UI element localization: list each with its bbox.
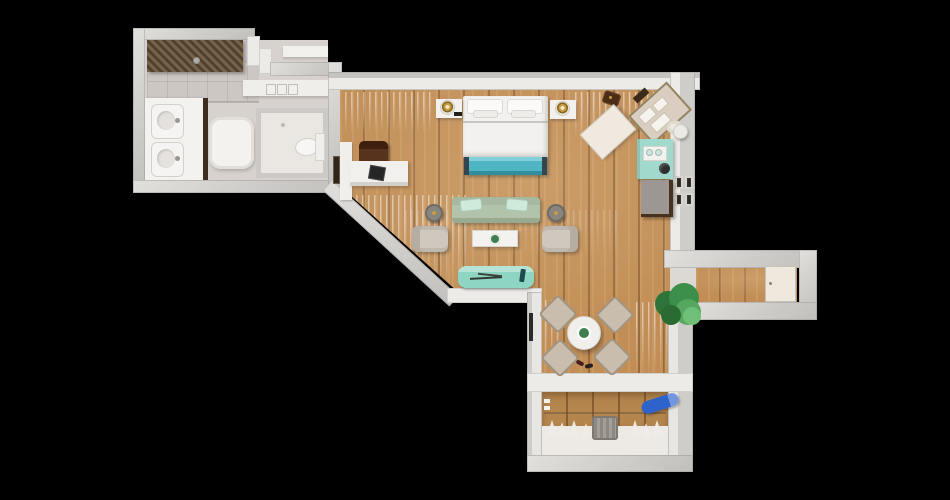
picture-frame (685, 176, 693, 189)
centerpiece (579, 328, 589, 338)
closet-handle (544, 399, 550, 403)
picture-frame (685, 193, 693, 206)
armchair (542, 226, 578, 252)
hanger (652, 420, 662, 435)
wall-closet-top (527, 373, 693, 392)
closet-handle (544, 406, 550, 410)
potted-plant (655, 283, 703, 327)
plant-leaf (683, 307, 701, 325)
bag-buckle (609, 96, 612, 99)
hanger (569, 420, 579, 435)
hanger (630, 420, 640, 435)
sink-left (151, 104, 184, 139)
table-lamp (441, 101, 454, 114)
wall-hallway-bottom (688, 302, 817, 320)
side-table (425, 204, 443, 222)
shower-slat-canopy (147, 40, 243, 72)
table-plant (491, 235, 499, 243)
plant-leaf (661, 305, 681, 325)
picture-frame (675, 193, 683, 206)
sofa-pillow (506, 198, 529, 212)
pillow-small (511, 110, 536, 118)
bed-foot-bench (464, 157, 547, 175)
laptop (368, 165, 386, 182)
wall (133, 180, 345, 193)
ceiling-light (281, 123, 285, 127)
wall (133, 28, 255, 40)
shower-tray (209, 117, 254, 169)
picture-frame (675, 176, 683, 189)
cup (646, 149, 653, 156)
wall-bottom (527, 455, 693, 472)
bath-shelf (283, 46, 328, 57)
hanger (641, 423, 651, 438)
towel-roll (288, 84, 298, 95)
pillow-small (473, 110, 498, 118)
hanger (547, 420, 557, 435)
cup (655, 149, 662, 156)
armchair (412, 226, 448, 252)
laundry-basket (592, 416, 618, 440)
kettle (659, 163, 670, 174)
toilet-cistern (315, 133, 325, 161)
dresser (641, 180, 673, 217)
sofa-pillow (459, 198, 482, 212)
window-slit (529, 313, 533, 341)
blanket-fold (463, 121, 548, 123)
wall (133, 28, 145, 193)
door-handle (769, 282, 772, 285)
table-lamp (556, 102, 569, 115)
hanger (557, 422, 567, 437)
wall-art-recess (333, 156, 340, 184)
floor-plan-scene (0, 0, 950, 500)
hanger (581, 423, 591, 438)
stool (673, 124, 688, 139)
remote (454, 112, 462, 116)
vanity-trim (203, 98, 208, 184)
sink-right (151, 142, 184, 177)
towel-roll (266, 84, 276, 95)
towel-roll (277, 84, 287, 95)
sheer-curtain (345, 92, 435, 134)
shower-drain (193, 57, 200, 64)
side-table (547, 204, 565, 222)
